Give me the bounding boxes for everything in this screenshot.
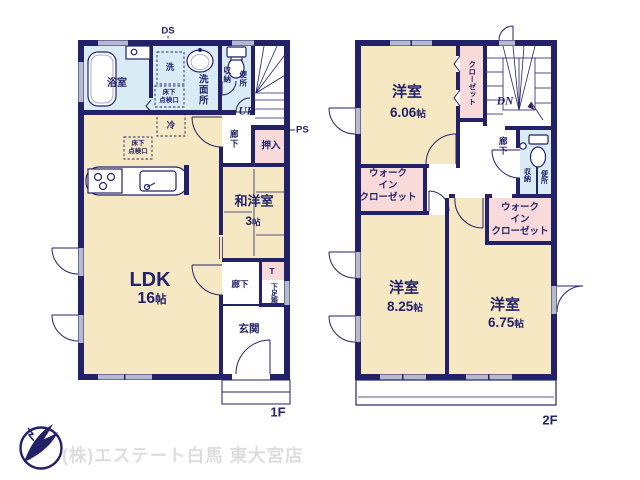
label-wic-left: ウォークインクローゼット	[359, 168, 416, 204]
bath-counter	[126, 46, 150, 59]
label-toilet-1f: 便所	[239, 71, 247, 88]
room-ldk	[84, 112, 222, 374]
company-name: (株)エステート白馬 東大宮店	[62, 443, 304, 468]
label-wic-right: ウォークインクローゼット	[491, 202, 548, 238]
window	[356, 316, 361, 342]
room-tatami	[222, 167, 287, 258]
window	[552, 286, 557, 314]
label-floor1: 1F	[270, 406, 285, 419]
label-bedroom1-size: 6.06帖	[390, 106, 426, 120]
label-hallway-2f: 廊下	[499, 137, 508, 156]
label-storage-1f: 収納	[223, 67, 231, 84]
label-storage-2f: 収納	[524, 168, 531, 182]
label-entrance: 玄関	[239, 324, 260, 335]
label-bedroom3-size: 6.75帖	[488, 316, 524, 330]
label-floor2: 2F	[542, 414, 557, 427]
window	[79, 248, 84, 276]
window	[356, 252, 361, 278]
kitchen-counter	[86, 165, 189, 195]
window	[499, 41, 515, 46]
label-duct-space: DS	[161, 26, 174, 36]
label-toilet-2f: 便所	[541, 170, 548, 184]
label-stairs-up: UP	[238, 106, 253, 118]
label-shoe-box: 下足箱	[269, 283, 276, 303]
window	[79, 315, 84, 343]
label-underfloor-2: 床下点検口	[128, 140, 148, 156]
label-bedroom2: 洋室	[389, 281, 419, 296]
label-tatami-room: 和洋室	[234, 195, 273, 208]
window	[98, 41, 128, 46]
label-stairs-down: DN	[497, 96, 514, 108]
label-bath: 浴室	[107, 79, 127, 89]
label-entrance-step: T	[269, 267, 274, 276]
window	[79, 62, 84, 102]
label-fridge: 冷	[167, 121, 176, 130]
porch-steps	[222, 380, 290, 404]
label-hallway-upper: 廊下	[230, 130, 239, 149]
floorplan-page: 浴室 洗面所 洗 床下点検口 床下点検口 冷 収納 便所 UP 廊下 押入 PS…	[0, 0, 640, 480]
label-bedroom2-size: 8.25帖	[387, 300, 423, 314]
balcony	[356, 380, 556, 405]
label-ldk-size: 16帖	[137, 291, 166, 307]
label-hallway-lower: 廊下	[231, 280, 248, 289]
label-tatami-size: 3帖	[245, 215, 260, 227]
label-closet-2f: クローゼット	[468, 61, 476, 106]
label-ldk: LDK	[129, 270, 170, 290]
window	[356, 108, 361, 134]
floorplan-drawing	[0, 0, 640, 480]
label-oshiire: 押入	[261, 141, 280, 151]
label-pipe-space: PS	[296, 125, 309, 135]
label-washroom: 洗面所	[197, 74, 207, 106]
label-underfloor-1: 床下点検口	[159, 89, 179, 105]
label-laundry: 洗	[166, 63, 175, 72]
label-bedroom1: 洋室	[392, 85, 422, 100]
window	[232, 41, 254, 46]
window	[285, 281, 290, 305]
company-logo	[21, 424, 62, 469]
label-bedroom3: 洋室	[490, 298, 520, 313]
